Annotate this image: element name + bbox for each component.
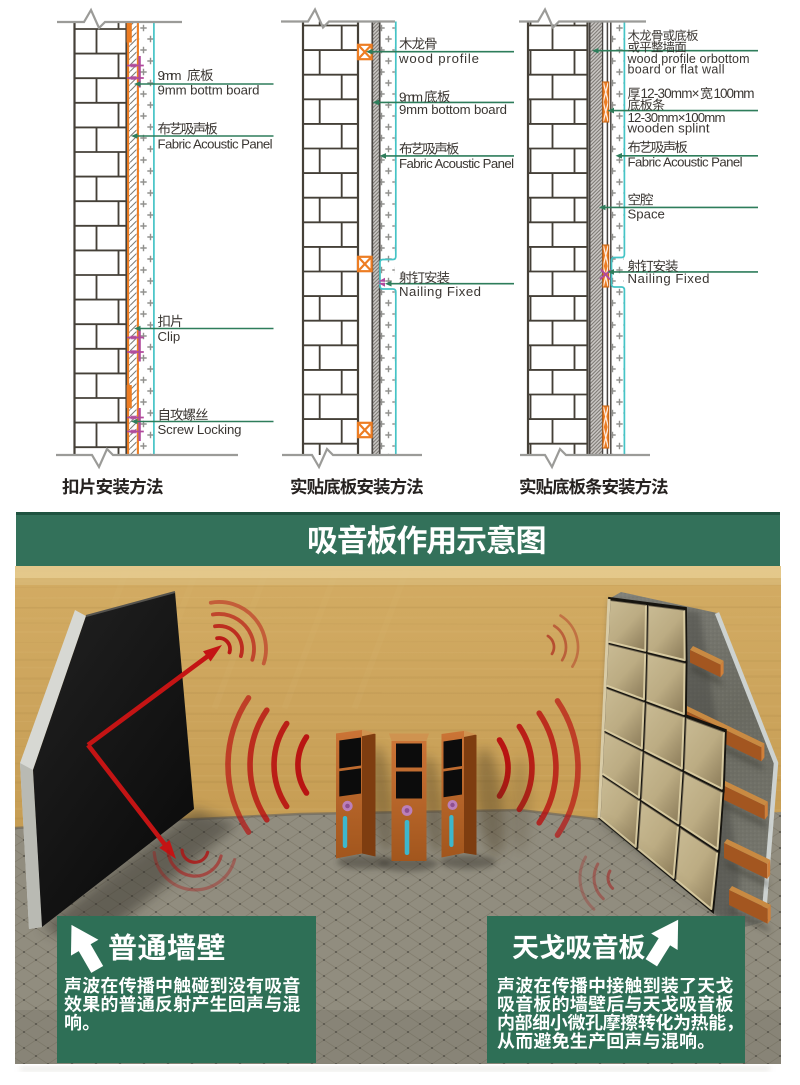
svg-text:100mm: 100mm [714, 86, 755, 101]
svg-text:Fabric Acoustic Panel: Fabric Acoustic Panel [158, 137, 273, 152]
svg-text:9mm bottm board: 9mm bottm board [158, 83, 260, 98]
svg-text:12-30mm×: 12-30mm× [641, 86, 700, 101]
svg-text:Fabric Acoustic Panel: Fabric Acoustic Panel [399, 156, 514, 171]
svg-text:wooden splint: wooden splint [627, 121, 710, 136]
svg-text:Nailing Fixed: Nailing Fixed [399, 284, 481, 299]
svg-text:Fabric Acoustic Panel: Fabric Acoustic Panel [628, 155, 743, 170]
svg-text:wood profile: wood profile [398, 51, 479, 66]
svg-text:9mm: 9mm [158, 68, 182, 83]
svg-text:board or flat wall: board or flat wall [628, 63, 725, 77]
svg-text:Screw Locking: Screw Locking [158, 422, 242, 437]
svg-text:Nailing Fixed: Nailing Fixed [628, 271, 710, 286]
svg-text:Clip: Clip [158, 329, 181, 344]
svg-text:Space: Space [628, 207, 665, 222]
svg-text:9mm bottom board: 9mm bottom board [399, 102, 507, 117]
